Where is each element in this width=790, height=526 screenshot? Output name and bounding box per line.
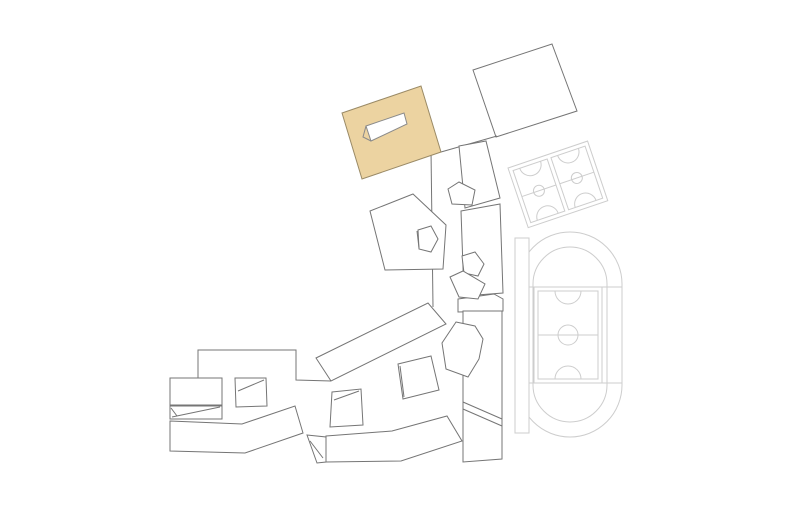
building-ne-rect (473, 44, 577, 137)
courtyard-center (398, 356, 439, 399)
site-outline-nw (198, 350, 331, 381)
courtyard-west (235, 378, 267, 407)
soccer-field-arc-top (555, 291, 581, 304)
soccer-field-arc-bottom (555, 366, 581, 379)
grandstand-strip (515, 238, 529, 433)
courts-outer-frame (508, 141, 608, 228)
highlighted-building[interactable] (342, 86, 441, 179)
site-plan-svg[interactable] (0, 0, 790, 526)
courtyard-mid-left (330, 389, 363, 427)
building-west-rect (170, 378, 222, 405)
site-plan-page (0, 0, 790, 526)
basketball-courts (508, 141, 608, 228)
